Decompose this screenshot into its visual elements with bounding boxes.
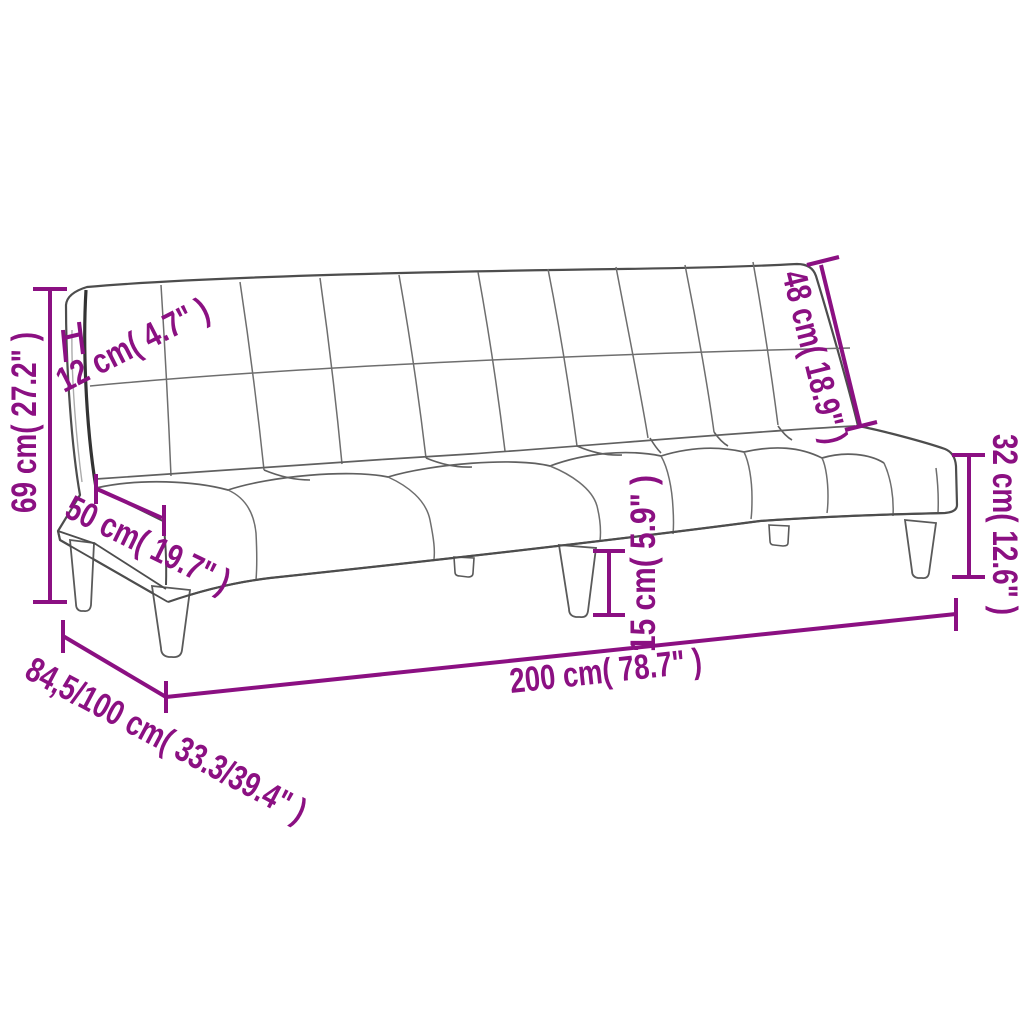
svg-text:69 cm( 27.2" ): 69 cm( 27.2" ) bbox=[5, 332, 44, 513]
svg-text:32 cm( 12.6" ): 32 cm( 12.6" ) bbox=[985, 434, 1024, 615]
svg-text:15 cm( 5.9" ): 15 cm( 5.9" ) bbox=[624, 475, 663, 652]
